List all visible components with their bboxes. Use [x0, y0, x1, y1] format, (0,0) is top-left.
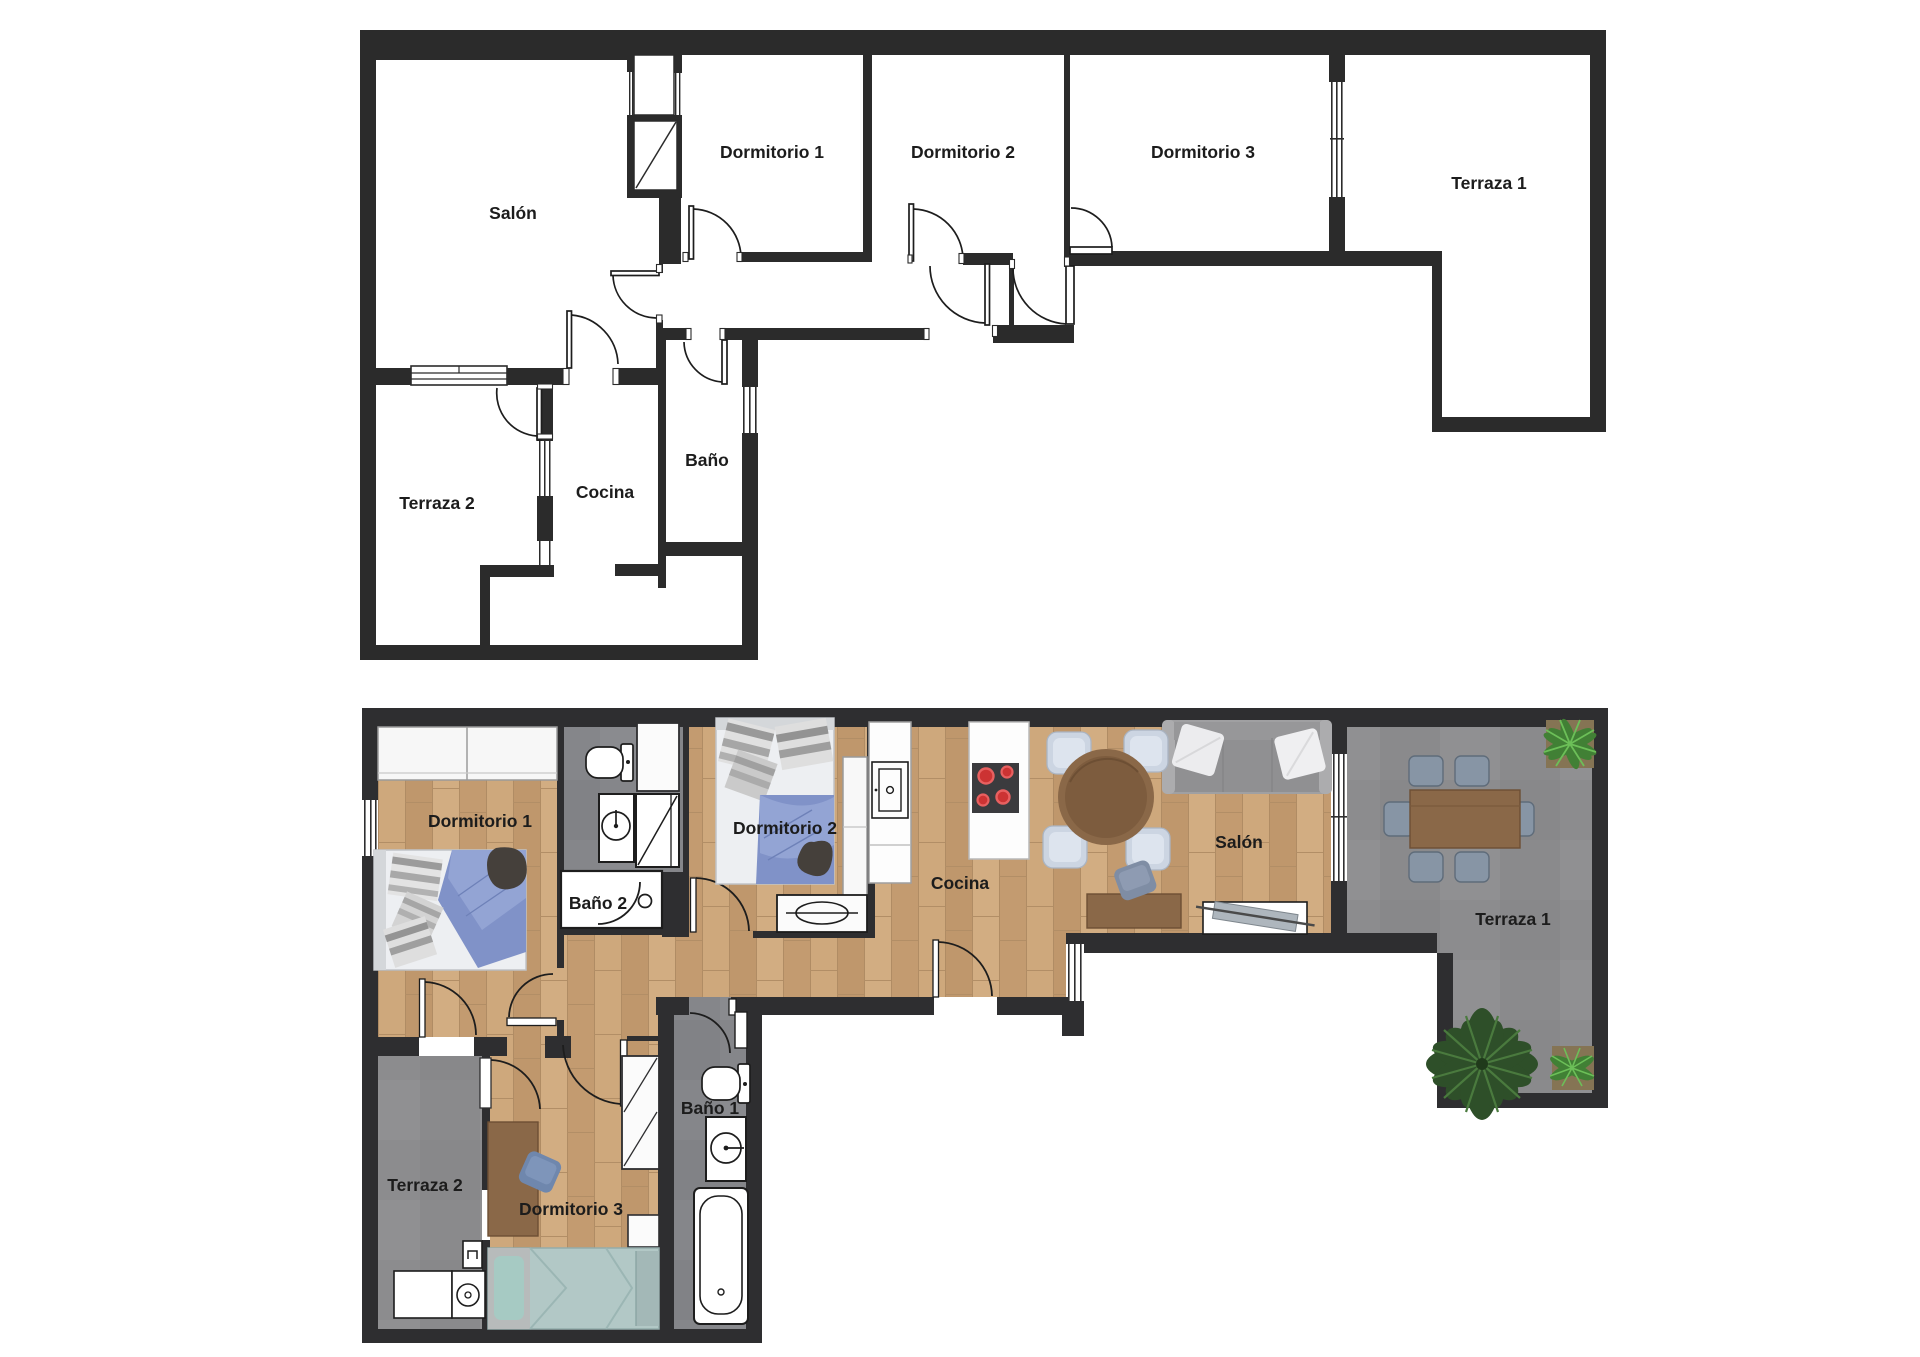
svg-text:Terraza 1: Terraza 1 — [1475, 909, 1551, 929]
svg-text:Dormitorio 1: Dormitorio 1 — [428, 811, 532, 831]
svg-text:Cocina: Cocina — [576, 482, 635, 502]
svg-text:Cocina: Cocina — [931, 873, 990, 893]
svg-text:Dormitorio 2: Dormitorio 2 — [733, 818, 837, 838]
svg-text:Dormitorio 3: Dormitorio 3 — [1151, 142, 1255, 162]
svg-text:Dormitorio 1: Dormitorio 1 — [720, 142, 824, 162]
svg-text:Terraza 2: Terraza 2 — [399, 493, 475, 513]
svg-text:Terraza 2: Terraza 2 — [387, 1175, 463, 1195]
svg-text:Terraza 1: Terraza 1 — [1451, 173, 1527, 193]
svg-text:Baño 2: Baño 2 — [569, 893, 628, 913]
svg-text:Dormitorio 2: Dormitorio 2 — [911, 142, 1015, 162]
svg-text:Baño: Baño — [685, 450, 729, 470]
svg-text:Dormitorio 3: Dormitorio 3 — [519, 1199, 623, 1219]
svg-text:Salón: Salón — [1215, 832, 1263, 852]
svg-text:Salón: Salón — [489, 203, 537, 223]
svg-text:Baño 1: Baño 1 — [681, 1098, 740, 1118]
